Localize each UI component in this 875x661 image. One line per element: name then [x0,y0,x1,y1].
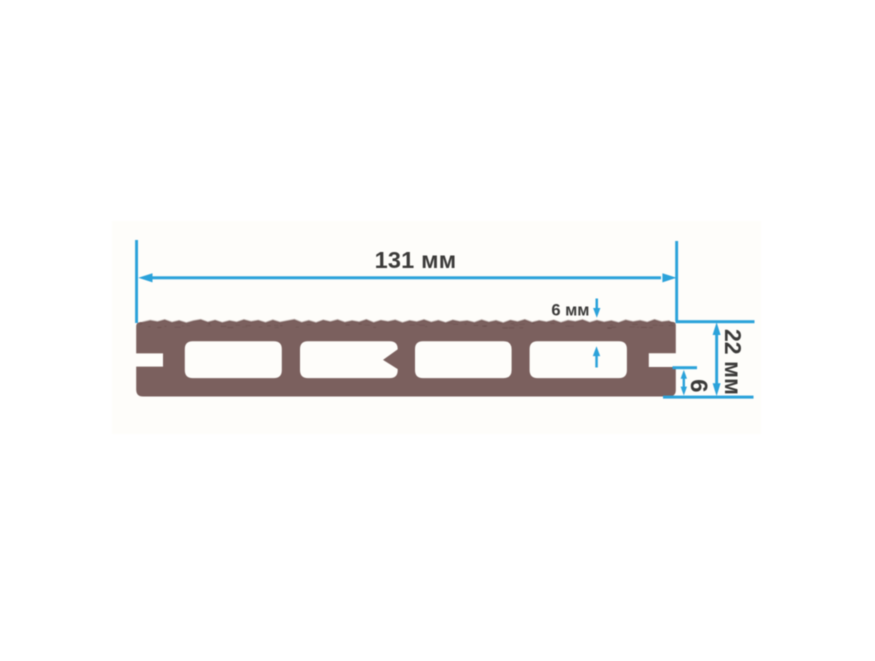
svg-text:6 мм: 6 мм [551,301,589,319]
svg-text:131 мм: 131 мм [375,247,457,273]
svg-text:9: 9 [687,379,714,392]
svg-text:22 мм: 22 мм [720,329,746,395]
